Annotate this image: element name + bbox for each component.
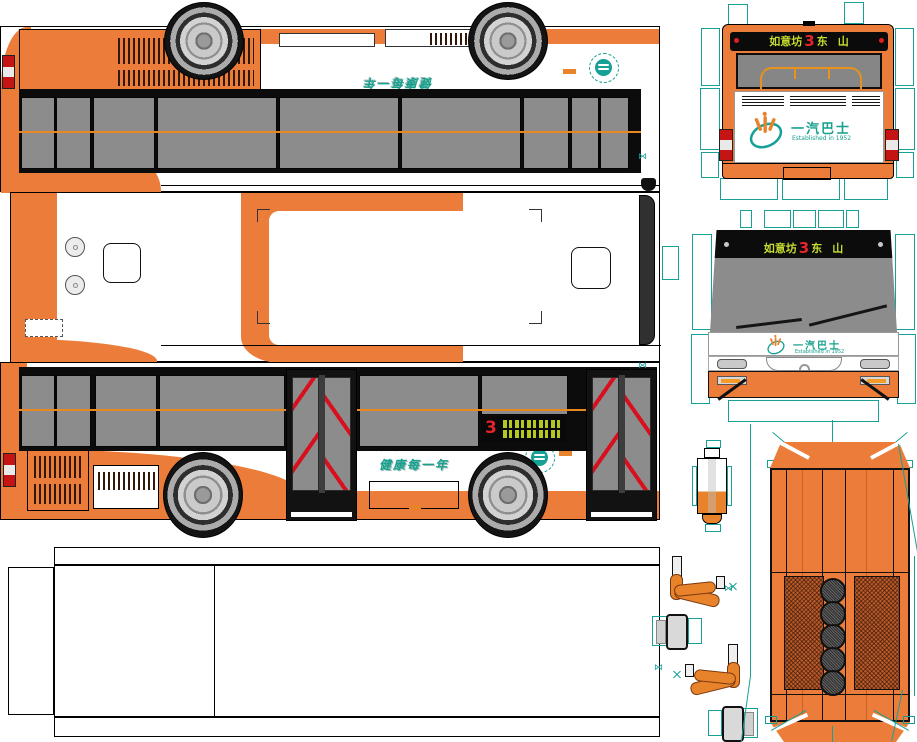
front-white-band: 一汽巴士 Established in 1952 — [708, 332, 899, 356]
panel-floor — [8, 545, 660, 742]
wiper — [736, 318, 802, 329]
rear-destination-sign: 如意坊3东山 — [730, 32, 888, 51]
door-sill — [291, 512, 352, 517]
panel-roof — [10, 192, 660, 362]
window-band — [19, 89, 641, 173]
engine-vents — [34, 484, 84, 504]
vent-grille — [742, 96, 784, 108]
handrail-post — [794, 67, 796, 79]
front-destination-sign: 如意坊3东山 — [710, 230, 897, 258]
roof-vent-fan — [65, 275, 85, 295]
door-leaf — [624, 377, 651, 491]
registration-mark-icon: ⋈ — [654, 664, 663, 673]
luggage-door — [279, 33, 375, 47]
part-mirrors — [650, 556, 775, 742]
cut-mark — [529, 209, 542, 222]
window-pane — [93, 97, 155, 169]
vent-panel — [385, 29, 471, 47]
underside-body — [770, 468, 910, 722]
section-line — [772, 694, 908, 695]
engine-mesh-grille — [784, 576, 824, 690]
glue-tab — [740, 210, 752, 228]
brand-established: Established in 1952 — [792, 135, 851, 142]
roof-fold-line — [161, 345, 661, 346]
glue-tab — [728, 400, 879, 422]
marker-light — [878, 242, 883, 247]
glue-tab — [846, 210, 859, 228]
cut-notch — [25, 319, 63, 337]
cylinder-cap — [704, 448, 720, 458]
windshield-top-edge — [639, 195, 655, 345]
driver-window — [571, 97, 629, 169]
rub-rail — [19, 131, 641, 133]
marker-light — [734, 38, 739, 43]
center-panel — [766, 357, 842, 371]
wheel-front-left — [468, 2, 548, 80]
tail-light — [885, 129, 899, 161]
rear-body: 如意坊3东山 一汽巴士 Established in 1952 — [722, 24, 894, 179]
exhaust-port — [820, 670, 846, 696]
engine-mesh-grille — [854, 576, 900, 690]
door-leaf — [324, 377, 351, 491]
panel-front-view: 如意坊3东山 一汽巴士 Established in 1952 — [690, 210, 917, 422]
roof-hatch — [103, 243, 141, 283]
window-pane — [359, 375, 479, 447]
tail-light — [2, 55, 15, 89]
handrail — [760, 67, 862, 89]
cylinder-body — [697, 458, 727, 514]
panel-side-right: 环保每一天 健康每一年 3 — [0, 362, 660, 520]
mirror-tip — [685, 664, 694, 677]
windshield-section: 如意坊3东山 — [710, 230, 897, 332]
handrail-post — [828, 67, 830, 79]
door-post — [319, 375, 325, 493]
window-pane — [157, 97, 277, 169]
tail-light — [719, 129, 733, 161]
tail-light — [3, 453, 16, 487]
glue-tab — [701, 28, 720, 86]
brand-emblem-icon — [749, 110, 783, 149]
glue-tab — [706, 440, 721, 448]
window-pane — [523, 97, 569, 169]
cut-mark — [257, 311, 270, 324]
front-light-band — [708, 356, 899, 371]
brand-emblem-icon — [767, 334, 785, 355]
glue-tab — [765, 716, 777, 724]
floor-flap-bottom — [54, 717, 660, 737]
registration-mark-icon: ⋈ — [638, 153, 647, 162]
bumper-line — [723, 163, 893, 164]
wheel-front-right — [468, 452, 548, 538]
cut-line — [832, 420, 833, 444]
floor-fold-line — [214, 566, 215, 716]
cylinder-foot — [702, 514, 722, 524]
orange-dash — [559, 451, 572, 456]
wheel-rear-right — [163, 452, 243, 538]
engine-grille — [27, 447, 89, 511]
cut-line — [832, 726, 833, 742]
front-door — [586, 369, 657, 521]
part-underside — [763, 420, 917, 742]
destination-text: 如意坊3东山 — [730, 32, 888, 51]
c-shape-inner — [269, 211, 463, 345]
green-label-roundel-icon — [589, 53, 619, 83]
roof-livery-left-band — [11, 193, 57, 363]
mirror-base — [641, 178, 656, 191]
panel-side-left-inverted: 环保每一天 健康每一年 — [0, 26, 660, 192]
door-sill — [591, 512, 652, 517]
license-plate — [783, 167, 831, 180]
vent-grille — [852, 96, 880, 108]
window-pane — [279, 97, 399, 169]
door-leaf — [592, 377, 619, 491]
middle-door — [286, 369, 357, 521]
floor-flap-top — [54, 547, 660, 565]
side-led-sign: 3 — [481, 416, 566, 442]
section-line — [772, 572, 908, 573]
roof-vent-fan — [65, 237, 85, 257]
cut-line — [750, 424, 751, 676]
marker-light — [879, 38, 884, 43]
orange-dash — [563, 69, 576, 74]
registration-mark-icon: ⋈ — [638, 362, 647, 371]
window-pane — [401, 97, 521, 169]
front-bumper — [708, 371, 899, 398]
window-pane — [159, 375, 285, 447]
cut-mark — [529, 311, 542, 324]
window-pane — [95, 375, 157, 447]
luggage-door — [369, 481, 459, 509]
roof-hatch — [571, 247, 611, 289]
glue-tab — [895, 28, 914, 86]
cut-line — [914, 556, 915, 696]
roof-marker — [803, 21, 815, 26]
emblem-arc-icon — [799, 364, 810, 370]
roof-livery-c-shape — [241, 193, 463, 363]
glue-tab — [818, 210, 844, 228]
mirror-assembly — [650, 556, 750, 652]
wiper — [809, 304, 887, 326]
door-leaf — [292, 377, 319, 491]
window-pane-slider — [21, 97, 91, 169]
glue-tab — [844, 178, 888, 200]
marker-light — [724, 242, 729, 247]
glue-tab — [897, 334, 916, 404]
glue-tab — [903, 716, 915, 724]
glue-tab — [692, 234, 712, 330]
glue-tab — [793, 210, 816, 228]
glue-tab — [844, 2, 864, 24]
roof-fold-line — [161, 185, 659, 186]
led-matrix-row — [503, 430, 562, 438]
vent-slits — [430, 33, 468, 45]
cut-mark — [257, 209, 270, 222]
glue-tab — [662, 246, 679, 280]
bottom-flap — [770, 722, 910, 742]
side-route-number: 3 — [485, 420, 497, 437]
panel-rear-view: 如意坊3东山 一汽巴士 Established in 1952 — [698, 2, 917, 204]
rear-white-panel: 一汽巴士 Established in 1952 — [734, 91, 884, 163]
glue-tab — [705, 524, 721, 532]
rear-window — [736, 53, 882, 89]
glue-tab — [701, 152, 719, 178]
registration-mark-icon: ⋈ — [724, 585, 733, 594]
mirror-head — [704, 706, 758, 742]
glue-tab — [728, 4, 748, 26]
luggage-latch — [409, 505, 421, 510]
glue-tab — [700, 88, 720, 150]
mirror-assembly — [660, 644, 760, 742]
destination-text: 如意坊3东山 — [710, 230, 897, 262]
floor-main — [54, 565, 660, 717]
brand-established: Established in 1952 — [795, 349, 844, 355]
headlight — [860, 359, 890, 369]
glue-tab — [895, 234, 915, 330]
led-matrix-row — [503, 420, 562, 428]
glue-tab — [692, 466, 697, 506]
engine-vents — [34, 456, 84, 478]
roof-livery-curve — [11, 339, 157, 363]
papercraft-sheet: 环保每一天 健康每一年 — [0, 0, 917, 742]
vent-grille — [790, 96, 846, 108]
glue-tab — [764, 210, 791, 228]
vent-panel — [93, 465, 159, 509]
part-cylinder — [695, 440, 735, 534]
door-post — [619, 375, 625, 493]
glue-tab — [782, 178, 840, 200]
headlight — [717, 359, 747, 369]
vent-slits — [98, 472, 156, 490]
glue-tab — [720, 178, 778, 200]
floor-flap-left — [8, 567, 54, 715]
glue-tab — [727, 466, 732, 506]
wheel-rear-left — [164, 2, 244, 80]
window-pane-slider — [21, 375, 91, 447]
